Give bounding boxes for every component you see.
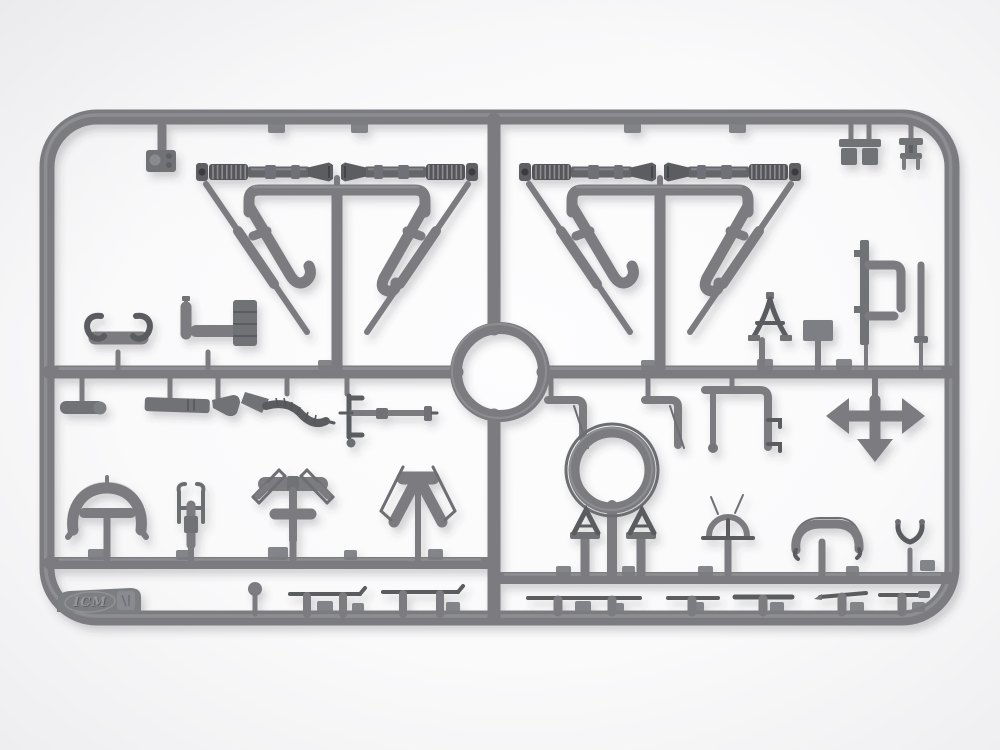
elbow-pipe-part	[869, 265, 901, 316]
logo-text: ICM	[72, 595, 107, 610]
tee-cradle-part	[253, 470, 333, 560]
side-bar-part	[854, 240, 869, 370]
prong-frame-part	[179, 484, 204, 560]
camera-box-part	[146, 126, 176, 172]
arrow-cross-part	[826, 375, 925, 462]
hose-funnel-part	[241, 376, 334, 424]
sprue-photo-svg: ICM ICM	[0, 0, 1000, 750]
bottle-tee-part	[182, 296, 257, 371]
dome-part	[703, 495, 753, 575]
sprue-runners	[49, 119, 950, 616]
trestle-part	[626, 510, 656, 575]
pintle-part	[899, 124, 923, 168]
footplate-part	[145, 378, 210, 413]
hammer-part	[60, 378, 107, 415]
bracket-pads-part	[839, 124, 881, 165]
a-sight-part	[748, 292, 792, 370]
hook-tee-part	[87, 316, 150, 371]
knob-elbow-part	[705, 375, 780, 453]
sprue: ICM ICM	[46, 115, 952, 618]
center-ring	[452, 324, 546, 418]
trestle-part	[570, 510, 600, 575]
plate-part	[803, 320, 833, 370]
rod-part	[914, 265, 928, 370]
blade-part	[212, 378, 240, 416]
umbrella-guard-part	[68, 477, 146, 560]
a-frame-part	[381, 467, 455, 560]
ball-pin-part	[248, 582, 262, 614]
logo-tab: ICM ICM	[57, 588, 141, 613]
elbow-bracket-part	[645, 375, 684, 448]
axle-bracket-part	[340, 376, 437, 448]
sprue-photo: ICM ICM	[0, 0, 1000, 750]
